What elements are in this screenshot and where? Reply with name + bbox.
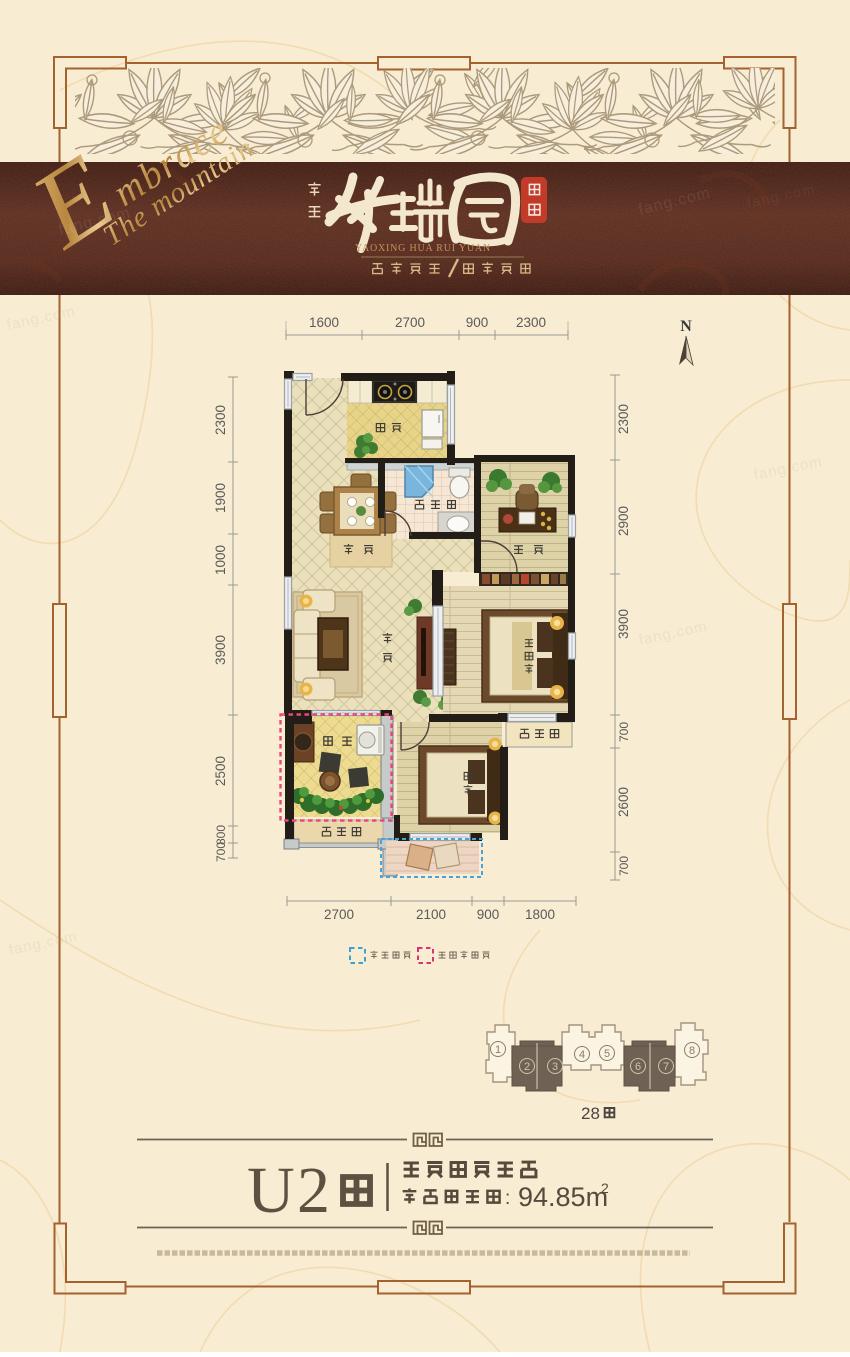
svg-text:700: 700	[617, 722, 631, 742]
svg-text:U: U	[247, 1154, 295, 1227]
svg-text::: :	[505, 1188, 510, 1209]
svg-text:6: 6	[635, 1061, 641, 1073]
svg-text:2: 2	[524, 1061, 530, 1073]
svg-text:2700: 2700	[324, 907, 354, 922]
svg-text:7: 7	[663, 1061, 669, 1073]
svg-text:2500: 2500	[213, 756, 228, 786]
svg-text:N: N	[680, 318, 692, 335]
svg-text:700: 700	[617, 856, 631, 876]
svg-text:3900: 3900	[213, 635, 228, 665]
svg-text:2600: 2600	[616, 787, 631, 817]
svg-text:900: 900	[466, 315, 489, 330]
svg-text:2300: 2300	[516, 315, 546, 330]
svg-text:1: 1	[495, 1044, 501, 1056]
svg-text:8: 8	[689, 1045, 695, 1057]
svg-text:YAOXING HUA RUI YUAN: YAOXING HUA RUI YUAN	[355, 243, 491, 254]
svg-text:2700: 2700	[395, 315, 425, 330]
svg-text:2300: 2300	[616, 404, 631, 434]
svg-text:1800: 1800	[525, 907, 555, 922]
svg-text:900: 900	[477, 907, 500, 922]
svg-text:3900: 3900	[616, 609, 631, 639]
svg-text:3: 3	[552, 1061, 558, 1073]
svg-text:2: 2	[601, 1180, 609, 1196]
svg-text:2900: 2900	[616, 506, 631, 536]
svg-text:800: 800	[214, 825, 228, 845]
svg-text:4: 4	[579, 1049, 585, 1061]
svg-text:2: 2	[297, 1154, 330, 1227]
svg-text:94.85m: 94.85m	[518, 1182, 608, 1212]
svg-text:5: 5	[604, 1048, 610, 1060]
svg-text:2300: 2300	[213, 405, 228, 435]
svg-text:28: 28	[581, 1104, 600, 1123]
svg-text:1000: 1000	[213, 545, 228, 575]
svg-text:1900: 1900	[213, 483, 228, 513]
svg-text:700: 700	[214, 842, 228, 862]
svg-text:2100: 2100	[416, 907, 446, 922]
svg-text:1600: 1600	[309, 315, 339, 330]
